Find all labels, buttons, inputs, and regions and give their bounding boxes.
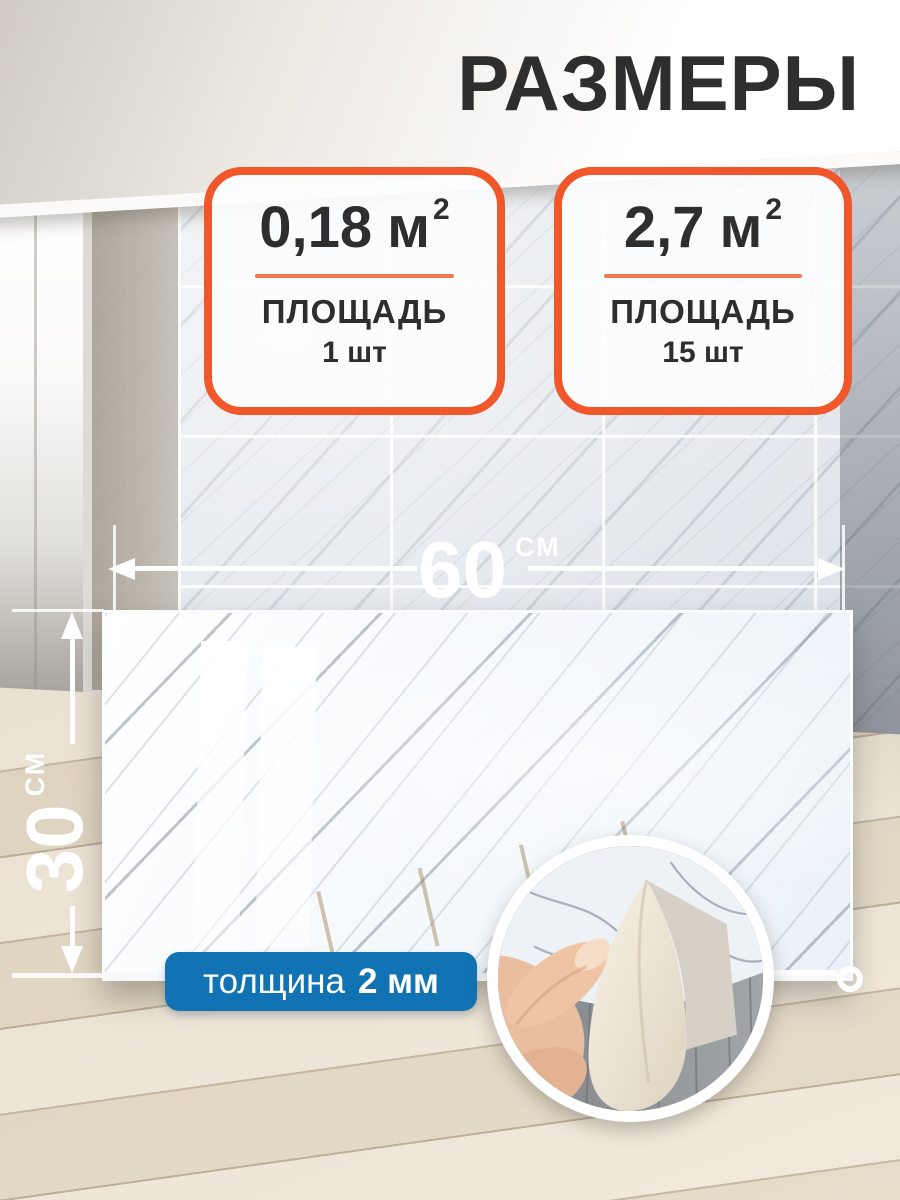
inset-connector-line bbox=[768, 970, 838, 976]
width-arrow-shaft-left bbox=[133, 566, 417, 571]
area-value: 0,18 м 2 bbox=[259, 199, 449, 257]
product-infographic: РАЗМЕРЫ 0,18 м 2 ПЛОЩАДЬ 1 шт 2,7 м 2 ПЛ… bbox=[0, 0, 900, 1200]
area-value: 2,7 м 2 bbox=[624, 199, 782, 257]
area-number: 0,18 bbox=[259, 199, 372, 257]
card-divider bbox=[604, 274, 801, 278]
width-tick-right bbox=[842, 525, 845, 611]
height-tick-bottom bbox=[12, 973, 104, 978]
area-label: ПЛОЩАДЬ bbox=[610, 293, 795, 331]
width-dimension-label: 60 СМ bbox=[418, 530, 561, 610]
area-card-pack: 2,7 м 2 ПЛОЩАДЬ 15 шт bbox=[554, 167, 852, 415]
piece-count: 15 шт bbox=[662, 336, 743, 370]
width-arrow-right-icon bbox=[818, 558, 845, 580]
area-number: 2,7 bbox=[624, 199, 705, 257]
piece-count: 1 шт bbox=[322, 336, 387, 370]
height-arrow-up-icon bbox=[61, 612, 83, 639]
gloss-reflection bbox=[193, 641, 247, 953]
page-title: РАЗМЕРЫ bbox=[457, 38, 860, 129]
peel-detail-inset bbox=[487, 835, 774, 1122]
width-value: 60 bbox=[418, 530, 507, 610]
width-unit: СМ bbox=[515, 534, 561, 561]
area-unit: м bbox=[720, 199, 763, 257]
thickness-label: толщина bbox=[203, 962, 345, 1002]
area-exponent: 2 bbox=[765, 195, 782, 225]
card-divider bbox=[255, 274, 455, 278]
gloss-reflection bbox=[255, 647, 317, 947]
thickness-badge: толщина 2 мм bbox=[165, 952, 477, 1011]
area-card-single: 0,18 м 2 ПЛОЩАДЬ 1 шт bbox=[204, 167, 505, 415]
height-unit: СМ bbox=[22, 751, 49, 797]
width-arrow-shaft-right bbox=[528, 566, 820, 571]
corner-marker-ring-icon bbox=[837, 966, 863, 992]
area-exponent: 2 bbox=[433, 195, 450, 225]
height-value: 30 bbox=[15, 804, 95, 893]
height-tick-top bbox=[12, 609, 104, 612]
height-dimension-label: 30 СМ bbox=[10, 702, 100, 942]
area-label: ПЛОЩАДЬ bbox=[262, 293, 447, 331]
area-unit: м bbox=[387, 199, 430, 257]
width-tick-left bbox=[113, 525, 116, 611]
height-arrow-down-icon bbox=[61, 946, 83, 973]
thickness-value: 2 мм bbox=[358, 962, 439, 1002]
peel-detail-illustration bbox=[498, 846, 763, 1111]
